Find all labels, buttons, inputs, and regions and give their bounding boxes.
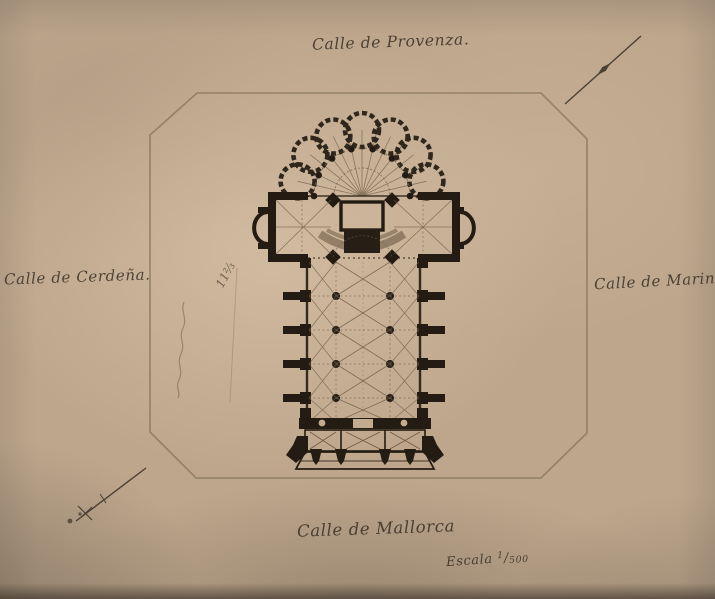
scale-denominator: 500 bbox=[509, 554, 529, 566]
altar-block bbox=[344, 229, 380, 253]
facade-rose-left bbox=[319, 420, 326, 427]
church-floor-plan bbox=[254, 113, 474, 469]
compass-needle-sw bbox=[68, 468, 146, 523]
scanned-plan-photo: Calle de Provenza. Calle de Cerdeña. Cal… bbox=[0, 0, 715, 599]
plan-drawing-svg bbox=[0, 0, 715, 599]
west-facade bbox=[286, 418, 444, 469]
scale-word: Escala bbox=[446, 552, 494, 570]
nave bbox=[283, 258, 445, 422]
facade-door-gap bbox=[353, 419, 373, 428]
nave-side-walls bbox=[307, 262, 420, 420]
pencil-scribble-note bbox=[178, 302, 185, 398]
pencil-guide-line bbox=[230, 268, 237, 402]
compass-needle-ne bbox=[565, 36, 641, 104]
porch-vault-stars bbox=[310, 432, 420, 449]
nave-bay-lines bbox=[309, 296, 419, 398]
facade-rose-right bbox=[401, 420, 408, 427]
transept-apsidiole-right bbox=[460, 212, 474, 244]
nave-pilasters bbox=[300, 258, 428, 420]
transept-apsidiole-left bbox=[254, 212, 268, 244]
crossing-altar bbox=[320, 202, 404, 257]
apse-chevet bbox=[281, 113, 444, 199]
altar-enclosure bbox=[341, 202, 383, 230]
pencil-marks bbox=[178, 268, 237, 402]
